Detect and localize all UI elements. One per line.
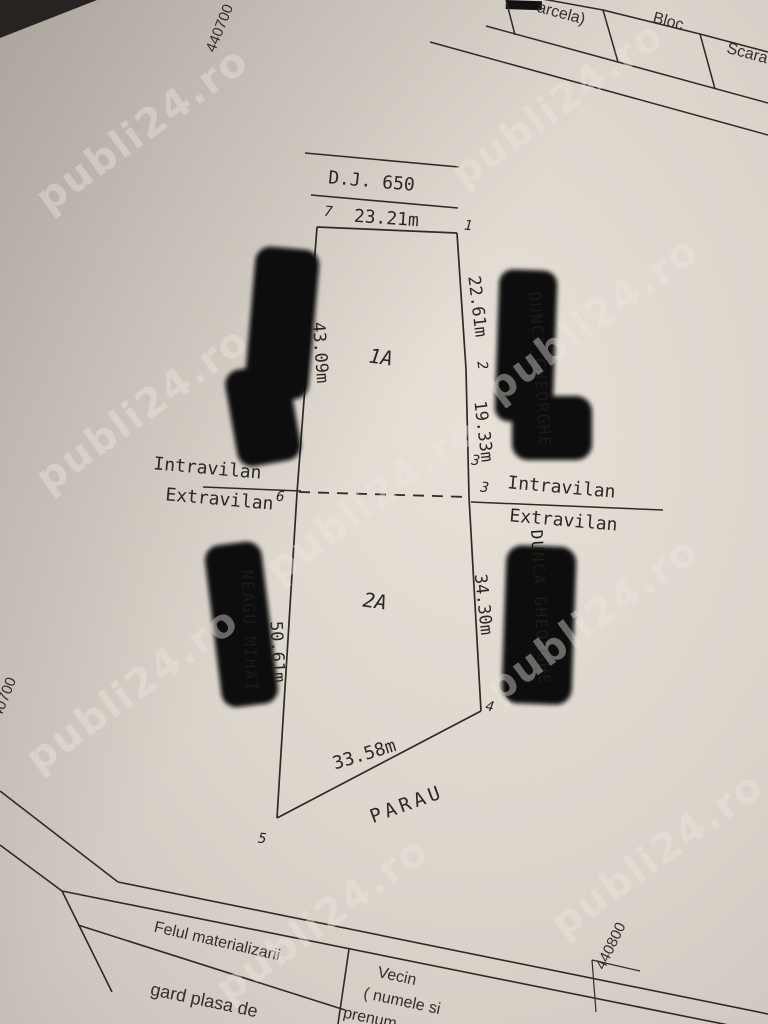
point-1: 1 — [463, 218, 473, 235]
parcel-label-2A: 2A — [361, 588, 388, 615]
cadastral-plan-photo: arcela) Bloc Scara 440700 440700 440800 … — [0, 0, 768, 1024]
point-5: 5 — [257, 831, 267, 848]
dimension-left-upper: 43.09m — [308, 321, 332, 384]
dimension-left-lower: 50.61m — [265, 621, 288, 683]
point-6: 6 — [275, 489, 285, 506]
parcel-label-1A: 1A — [367, 344, 394, 371]
